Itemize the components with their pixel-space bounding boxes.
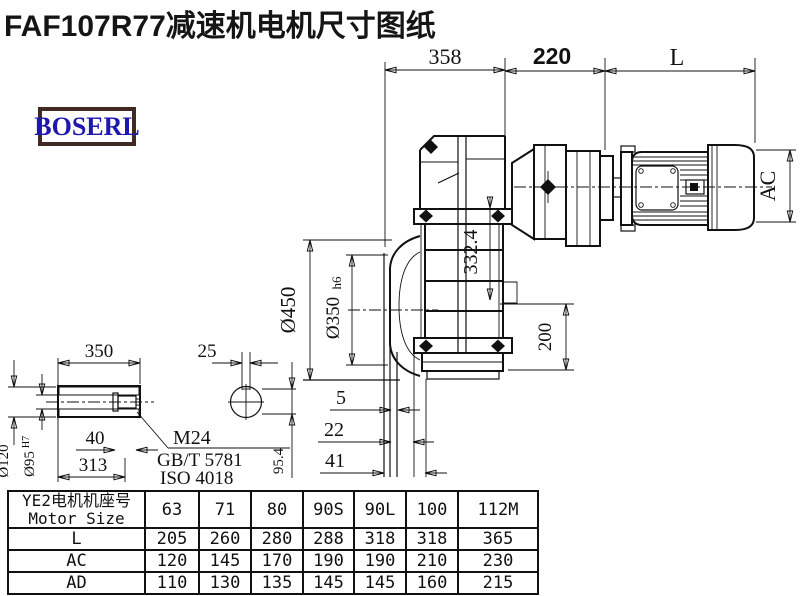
- dim-offset-1: 5: [336, 387, 346, 409]
- bolt-symbol: [424, 140, 438, 154]
- table-cell: 318: [354, 528, 406, 550]
- table-cell: 120: [145, 550, 199, 572]
- bolt-label: M24: [173, 427, 211, 449]
- drawing-sheet: FAF107R77减速机电机尺寸图纸 BOSERL 358 220 L: [0, 0, 800, 596]
- column-header-100: 100: [406, 491, 458, 528]
- flange-offset-dimensions: 5 22 41: [318, 387, 447, 473]
- motor-diameter-dimension: AC: [755, 150, 796, 222]
- hollow-shaft-detail: 350 Ø120 Ø95 H7 40 313 M24 GB/T: [0, 341, 290, 489]
- dim-bore-tolerance: H7: [21, 436, 32, 448]
- dim-bolt-engagement: 40: [86, 428, 105, 449]
- table-header-cn: YE2电机机座号: [9, 492, 144, 510]
- table-cell: 130: [199, 572, 251, 594]
- table-cell: 288: [303, 528, 354, 550]
- row-label-l: L: [8, 528, 145, 550]
- table-cell: 145: [354, 572, 406, 594]
- dim-bore-diameter: Ø95: [22, 451, 38, 477]
- table-cell: 135: [251, 572, 303, 594]
- table-cell: 170: [251, 550, 303, 572]
- dim-offset-2: 22: [324, 419, 344, 441]
- motor-adapter: [512, 145, 621, 246]
- table-header-en: Motor Size: [9, 510, 144, 527]
- column-header-112m: 112M: [458, 491, 538, 528]
- bolt-standard-iso: ISO 4018: [160, 468, 233, 489]
- table-cell: 145: [199, 550, 251, 572]
- fan-cowl: [708, 145, 754, 230]
- dim-base-height: 200: [535, 323, 556, 352]
- dim-inner-length: 313: [79, 455, 108, 476]
- table-cell: 160: [406, 572, 458, 594]
- dim-key-width: 25: [198, 341, 217, 362]
- table-cell: 260: [199, 528, 251, 550]
- dim-shaft-length: 350: [85, 341, 114, 362]
- dim-motor-diameter: AC: [755, 171, 780, 202]
- table-header-motor-size: YE2电机机座号 Motor Size: [8, 491, 145, 528]
- table-row-ac: AC 120 145 170 190 190 210 230: [8, 550, 538, 572]
- motor-flange: [621, 152, 632, 225]
- table-cell: 280: [251, 528, 303, 550]
- row-label-ac: AC: [8, 550, 145, 572]
- dim-spigot-diameter: Ø350: [323, 297, 344, 339]
- table-cell: 110: [145, 572, 199, 594]
- dim-shaft-od: Ø120: [0, 444, 12, 477]
- table-cell: 365: [458, 528, 538, 550]
- column-header-71: 71: [199, 491, 251, 528]
- motor-size-table: YE2电机机座号 Motor Size 63 71 80 90S 90L 100…: [7, 490, 539, 595]
- table-cell: 215: [458, 572, 538, 594]
- dim-motor-length: L: [670, 45, 685, 71]
- column-header-90s: 90S: [303, 491, 354, 528]
- dim-offset-3: 41: [325, 450, 345, 472]
- table-row-l: L 205 260 280 288 318 318 365: [8, 528, 538, 550]
- dim-spigot-tolerance: h6: [329, 276, 344, 290]
- dim-gearbox-length: 358: [429, 44, 462, 69]
- table-cell: 230: [458, 550, 538, 572]
- table-cell: 210: [406, 550, 458, 572]
- table-row-ad: AD 110 130 135 145 145 160 215: [8, 572, 538, 594]
- table-cell: 145: [303, 572, 354, 594]
- dim-key-height: 95.4: [271, 447, 287, 474]
- dim-center-height: 332.4: [460, 230, 482, 275]
- column-header-90l: 90L: [354, 491, 406, 528]
- column-header-80: 80: [251, 491, 303, 528]
- dim-flange-diameter: Ø450: [276, 287, 300, 334]
- table-cell: 205: [145, 528, 199, 550]
- row-label-ad: AD: [8, 572, 145, 594]
- table-cell: 190: [303, 550, 354, 572]
- table-cell: 318: [406, 528, 458, 550]
- column-header-63: 63: [145, 491, 199, 528]
- dim-adapter-length: 220: [533, 43, 571, 69]
- table-cell: 190: [354, 550, 406, 572]
